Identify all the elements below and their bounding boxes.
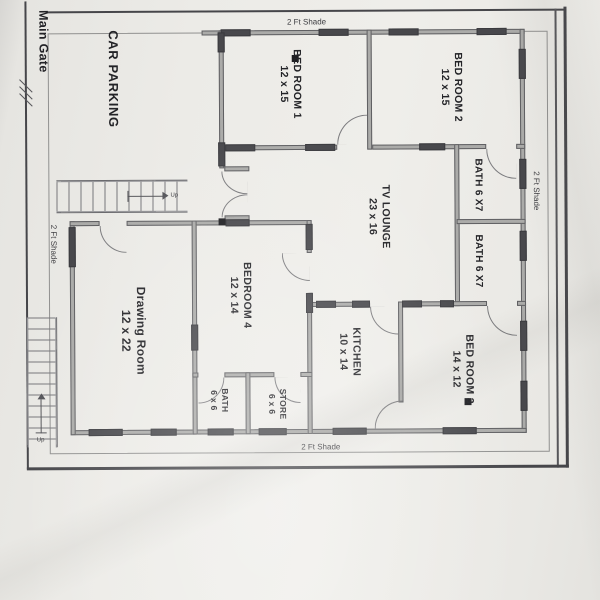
window-marker (259, 428, 287, 435)
room-label-bedroom-4: BEDROOM 4 12 x 14 (227, 262, 254, 328)
wall (245, 372, 250, 434)
room-label-bath-small: BATH 6 x 6 (209, 388, 230, 412)
window-marker (225, 144, 255, 151)
room-label-bath-lower: BATH 6 X7 (471, 234, 484, 287)
wall (300, 372, 312, 377)
window-marker (151, 429, 177, 436)
scanned-floor-plan-paper: Up Up Main Gate 2 Ft Shade 2 Ft Shade 2 … (0, 0, 600, 600)
window-marker (402, 300, 422, 307)
wall (70, 221, 100, 226)
boundary-right-outer (563, 7, 568, 468)
window-marker (443, 427, 477, 434)
wall (398, 301, 404, 402)
up-arrow-head (162, 192, 168, 200)
window-marker (520, 381, 527, 411)
column-marker (219, 218, 226, 225)
window-marker (419, 143, 445, 150)
window-marker (520, 321, 527, 351)
window-marker (306, 293, 313, 313)
up-arrow-head (37, 393, 45, 399)
wall (516, 144, 525, 149)
room-label-drawing-room: Drawing Room 12 x 22 (118, 287, 148, 375)
window-marker (520, 231, 527, 261)
room-label-bed-room-3: BED ROOM 3 14 x 12 (449, 334, 476, 404)
window-marker (519, 159, 526, 189)
room-label-bath-upper: BATH 6 X7 (471, 158, 484, 211)
wall (367, 30, 373, 150)
window-marker (440, 300, 454, 307)
shade-label-right: 2 Ft Shade (532, 171, 541, 210)
window-marker (352, 301, 370, 308)
window-marker (226, 219, 250, 226)
boundary-top (46, 9, 566, 14)
room-label-car-parking: CAR PARKING (104, 30, 121, 127)
up-arrow-shaft (41, 399, 42, 433)
boundary-right-inner (554, 9, 558, 468)
up-arrow-tail (127, 191, 128, 202)
boundary-bottom (27, 465, 569, 471)
window-marker (333, 428, 367, 435)
room-label-store: STORE 6 x 6 (267, 389, 288, 420)
window-marker (519, 49, 526, 79)
room-label-bed-room-2: BED ROOM 2 12 x 15 (438, 52, 465, 122)
main-gate-label: Main Gate (35, 10, 51, 73)
window-marker (218, 32, 225, 52)
window-marker (89, 429, 123, 436)
window-marker (306, 224, 313, 250)
window-marker (316, 301, 336, 308)
wall (517, 301, 526, 306)
room-label-tv-lounge: TV LOUNGE 23 x 16 (365, 185, 392, 249)
shade-label-left: 2 Ft Shade (49, 225, 58, 264)
stairs-up-label: Up (37, 437, 45, 443)
window-marker (319, 29, 349, 36)
staircase-outer-left (26, 317, 58, 447)
room-label-kitchen: KITCHEN 10 x 14 (336, 327, 363, 376)
wall (457, 219, 526, 224)
window-marker (305, 144, 335, 151)
wall (307, 293, 313, 434)
window-marker (69, 227, 76, 267)
wall (454, 144, 460, 306)
window-marker (389, 28, 419, 35)
window-marker (477, 28, 507, 35)
window-marker (208, 428, 234, 435)
window-marker (221, 29, 251, 36)
floor-plan: Up Up Main Gate 2 Ft Shade 2 Ft Shade 2 … (0, 0, 600, 600)
room-label-bed-room-1: BED ROOM 1 12 x 15 (277, 49, 304, 119)
stairs-up-label: Up (170, 193, 178, 199)
shade-label-bottom: 2 Ft Shade (301, 442, 340, 451)
up-arrow-shaft (127, 196, 163, 197)
up-arrow-tail (36, 432, 47, 433)
window-marker (191, 325, 198, 351)
shade-label-top: 2 Ft Shade (287, 17, 326, 26)
